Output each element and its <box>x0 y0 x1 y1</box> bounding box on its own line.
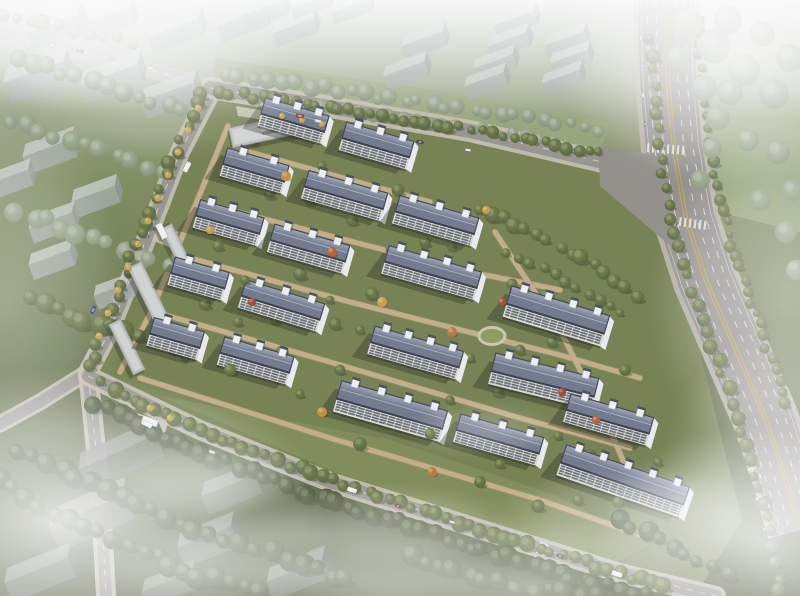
cool-tint <box>0 0 800 596</box>
aerial-scene-svg <box>0 0 800 596</box>
render-canvas <box>0 0 800 596</box>
